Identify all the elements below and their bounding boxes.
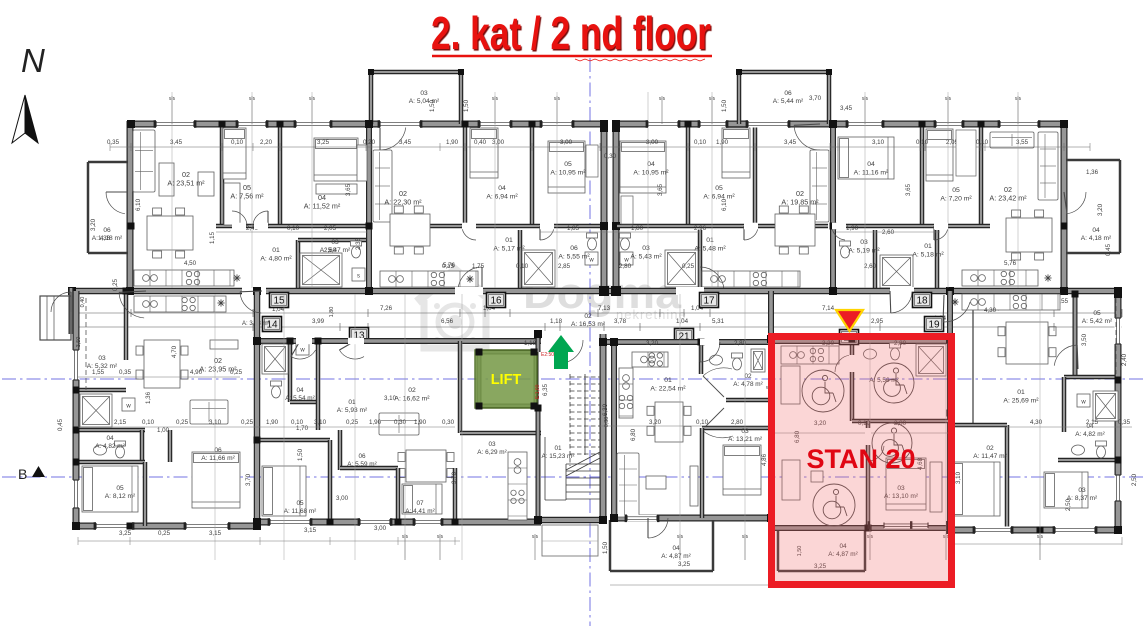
svg-text:03: 03 [642, 245, 650, 252]
svg-text:A: 5,18 m²: A: 5,18 m² [912, 251, 944, 258]
svg-text:A: 6,94 m²: A: 6,94 m² [703, 193, 735, 200]
svg-text:01: 01 [706, 237, 714, 244]
svg-text:3,25: 3,25 [317, 139, 330, 146]
svg-text:2,96: 2,96 [694, 225, 707, 232]
svg-text:A: 5,19 m²: A: 5,19 m² [848, 247, 880, 254]
svg-text:2,15: 2,15 [114, 419, 127, 426]
svg-text:A: 10,95 m²: A: 10,95 m² [633, 169, 669, 176]
svg-text:3,20: 3,20 [649, 419, 662, 426]
svg-text:5 5: 5 5 [249, 96, 256, 101]
svg-text:0,45: 0,45 [1105, 243, 1112, 256]
svg-text:A: 5,43 m²: A: 5,43 m² [630, 253, 662, 260]
svg-text:05: 05 [296, 500, 304, 507]
svg-text:3,50: 3,50 [1081, 333, 1088, 346]
svg-text:1,90: 1,90 [716, 139, 729, 146]
svg-text:A: 6,29 m²: A: 6,29 m² [477, 449, 506, 456]
svg-text:w: w [125, 404, 131, 410]
svg-text:5,31: 5,31 [712, 318, 725, 325]
svg-text:A: 11,66 m²: A: 11,66 m² [201, 455, 235, 462]
svg-text:02: 02 [182, 170, 190, 179]
svg-text:6,35: 6,35 [542, 383, 549, 396]
svg-text:0,25: 0,25 [112, 278, 119, 291]
svg-text:5 5: 5 5 [492, 96, 499, 101]
svg-text:0,10: 0,10 [287, 225, 300, 232]
svg-text:16: 16 [490, 296, 502, 307]
svg-text:3,65: 3,65 [657, 183, 664, 196]
svg-text:A: 7,20 m²: A: 7,20 m² [940, 195, 972, 202]
svg-text:w: w [1080, 400, 1086, 406]
svg-text:s: s [357, 274, 360, 280]
svg-text:0,10: 0,10 [916, 139, 929, 146]
svg-text:05: 05 [715, 185, 723, 192]
svg-text:3,45: 3,45 [840, 105, 853, 112]
svg-text:3,20: 3,20 [1097, 203, 1104, 216]
svg-text:1,18: 1,18 [550, 318, 563, 325]
svg-text:1,90: 1,90 [846, 225, 859, 232]
svg-text:5 5: 5 5 [677, 534, 684, 539]
svg-text:3,20: 3,20 [646, 340, 659, 347]
svg-text:5 5: 5 5 [709, 96, 716, 101]
svg-text:0,10: 0,10 [976, 139, 989, 146]
svg-text:4,70: 4,70 [171, 345, 178, 358]
svg-text:2,60: 2,60 [864, 263, 877, 270]
svg-text:5,76: 5,76 [1004, 260, 1017, 267]
svg-text:3,15: 3,15 [304, 527, 317, 534]
svg-text:5 5: 5 5 [554, 96, 561, 101]
svg-text:05: 05 [952, 187, 960, 194]
svg-text:04: 04 [1092, 227, 1100, 234]
svg-text:LIFT: LIFT [491, 372, 522, 388]
svg-text:5 5: 5 5 [402, 534, 409, 539]
svg-text:A: 4,41 m²: A: 4,41 m² [405, 508, 434, 515]
svg-text:A: 11,68 m²: A: 11,68 m² [284, 508, 317, 515]
svg-text:A: 6,94 m²: A: 6,94 m² [486, 193, 518, 200]
svg-text:3,65: 3,65 [345, 183, 352, 196]
svg-text:A: 5,48 m²: A: 5,48 m² [694, 245, 726, 252]
svg-text:04: 04 [672, 545, 680, 552]
svg-text:01: 01 [924, 243, 932, 250]
svg-text:3,10: 3,10 [872, 139, 885, 146]
svg-text:06: 06 [214, 447, 222, 454]
svg-text:1,50: 1,50 [429, 99, 436, 112]
svg-text:18: 18 [916, 296, 928, 307]
svg-text:15: 15 [273, 296, 285, 307]
svg-text:05: 05 [1093, 310, 1101, 317]
svg-text:6,10: 6,10 [721, 198, 728, 211]
svg-text:A: 23,51 m²: A: 23,51 m² [167, 179, 205, 188]
svg-text:3,00: 3,00 [492, 139, 505, 146]
svg-text:1,00: 1,00 [157, 427, 170, 434]
svg-text:E:1,60: E:1,60 [535, 384, 541, 399]
svg-text:02: 02 [986, 445, 994, 452]
svg-text:A: 16,62 m²: A: 16,62 m² [394, 395, 430, 402]
svg-text:2,60: 2,60 [882, 229, 895, 236]
svg-text:2,20: 2,20 [260, 139, 273, 146]
svg-text:1,50: 1,50 [463, 99, 470, 112]
svg-text:06: 06 [570, 245, 578, 252]
svg-text:04: 04 [106, 435, 114, 442]
svg-text:A: 7,56 m²: A: 7,56 m² [230, 192, 264, 201]
svg-text:3,50: 3,50 [76, 337, 82, 348]
svg-text:5 5: 5 5 [1037, 534, 1044, 539]
svg-text:0,40: 0,40 [474, 139, 487, 146]
svg-text:02: 02 [584, 313, 592, 320]
svg-text:5 5: 5 5 [659, 96, 666, 101]
svg-text:0,10: 0,10 [516, 263, 529, 270]
svg-text:02: 02 [1004, 185, 1012, 194]
svg-text:04: 04 [498, 185, 506, 192]
svg-text:02: 02 [796, 189, 804, 198]
svg-text:2,60: 2,60 [324, 247, 337, 254]
svg-text:06: 06 [358, 453, 366, 460]
svg-text:3,65: 3,65 [905, 183, 912, 196]
svg-text:6,10: 6,10 [135, 198, 142, 211]
svg-text:1,50: 1,50 [602, 541, 609, 554]
svg-text:0,10: 0,10 [142, 419, 155, 426]
svg-text:A: 4,80 m²: A: 4,80 m² [260, 255, 292, 262]
svg-text:3,10: 3,10 [955, 471, 962, 484]
svg-text:0,25: 0,25 [346, 419, 359, 426]
svg-text:3,10: 3,10 [314, 419, 327, 426]
svg-text:1,36: 1,36 [98, 235, 111, 242]
svg-text:2,05: 2,05 [324, 225, 337, 232]
svg-text:A: 4,78 m²: A: 4,78 m² [733, 381, 762, 388]
svg-text:0,25: 0,25 [230, 369, 243, 376]
svg-text:3,10: 3,10 [384, 395, 397, 402]
svg-text:STAN 20: STAN 20 [806, 444, 915, 474]
svg-text:03: 03 [1078, 487, 1086, 494]
svg-text:2,40: 2,40 [1121, 353, 1128, 366]
svg-text:1,90: 1,90 [446, 139, 459, 146]
svg-text:1,50: 1,50 [297, 448, 304, 461]
svg-text:01: 01 [664, 377, 672, 384]
svg-text:01: 01 [505, 237, 513, 244]
svg-text:0,15: 0,15 [442, 263, 455, 270]
svg-text:7,26: 7,26 [380, 305, 393, 312]
svg-text:A: 5,44 m²: A: 5,44 m² [773, 98, 804, 105]
svg-text:5 5: 5 5 [945, 96, 952, 101]
svg-text:0,30: 0,30 [604, 153, 617, 160]
svg-text:1,70: 1,70 [296, 425, 309, 432]
svg-text:A: 5,93 m²: A: 5,93 m² [337, 407, 368, 414]
svg-text:2,35: 2,35 [355, 237, 362, 250]
svg-text:05: 05 [243, 183, 251, 192]
svg-text:6,30: 6,30 [602, 403, 609, 416]
svg-text:2,85: 2,85 [558, 263, 571, 270]
svg-text:2,15: 2,15 [1086, 419, 1099, 426]
svg-text:A: 22,30 m²: A: 22,30 m² [384, 198, 422, 207]
svg-text:4,50: 4,50 [184, 260, 197, 267]
svg-text:1,04: 1,04 [676, 318, 689, 325]
svg-text:2. kat / 2 nd floor: 2. kat / 2 nd floor [431, 7, 711, 59]
svg-text:2,80: 2,80 [734, 340, 747, 347]
svg-text:A: 23,42 m²: A: 23,42 m² [989, 194, 1027, 203]
svg-text:06: 06 [103, 227, 111, 234]
svg-text:01: 01 [554, 445, 562, 452]
svg-text:1,85: 1,85 [567, 225, 580, 232]
svg-text:0,30: 0,30 [442, 419, 455, 426]
svg-text:3,45: 3,45 [784, 139, 797, 146]
svg-text:04: 04 [647, 161, 655, 168]
svg-text:02: 02 [744, 373, 752, 380]
svg-text:0,10: 0,10 [694, 139, 707, 146]
svg-text:01: 01 [1017, 389, 1025, 396]
svg-text:A: 4,87 m²: A: 4,87 m² [661, 553, 690, 560]
svg-text:3,25: 3,25 [678, 561, 691, 568]
svg-text:A: 5,17 m²: A: 5,17 m² [493, 245, 525, 252]
svg-text:0,30: 0,30 [394, 419, 407, 426]
svg-text:3,70: 3,70 [809, 95, 822, 102]
svg-text:03: 03 [98, 355, 106, 362]
svg-text:0,25: 0,25 [241, 419, 254, 426]
svg-text:01: 01 [272, 247, 280, 254]
svg-text:2,80: 2,80 [619, 263, 632, 270]
svg-text:A: 11,47 m²: A: 11,47 m² [973, 453, 1007, 460]
svg-text:1,50: 1,50 [721, 99, 728, 112]
svg-text:N: N [21, 42, 45, 79]
svg-text:5 5: 5 5 [309, 96, 316, 101]
svg-text:03: 03 [488, 441, 496, 448]
svg-text:A: 25,69 m²: A: 25,69 m² [1003, 397, 1039, 404]
svg-text:A: 4,82 m²: A: 4,82 m² [1075, 431, 1104, 438]
svg-text:A: 5,59 m²: A: 5,59 m² [347, 461, 376, 468]
svg-text:1,36: 1,36 [1086, 169, 1099, 176]
svg-text:B: B [18, 466, 27, 482]
svg-text:2,50: 2,50 [1065, 498, 1072, 511]
svg-text:3,00: 3,00 [374, 525, 387, 532]
svg-text:2,80: 2,80 [731, 419, 744, 426]
svg-text:19: 19 [928, 320, 940, 331]
svg-text:5 5: 5 5 [532, 534, 539, 539]
svg-text:A: 11,16 m²: A: 11,16 m² [854, 169, 889, 176]
svg-text:5 5: 5 5 [1015, 96, 1022, 101]
svg-text:A: 15,23 m²: A: 15,23 m² [541, 453, 574, 460]
svg-text:3,70: 3,70 [245, 473, 252, 486]
svg-text:04: 04 [318, 193, 326, 202]
svg-text:0,35: 0,35 [1118, 419, 1131, 426]
svg-text:3,45: 3,45 [399, 139, 412, 146]
svg-text:0,35: 0,35 [119, 369, 132, 376]
svg-text:A: 10,95 m²: A: 10,95 m² [550, 169, 586, 176]
svg-text:3,15: 3,15 [209, 530, 222, 537]
svg-text:5 5: 5 5 [169, 96, 176, 101]
svg-text:A: 4,18 m²: A: 4,18 m² [1081, 235, 1112, 242]
svg-text:1,80: 1,80 [329, 307, 335, 318]
svg-text:5 5: 5 5 [437, 534, 444, 539]
svg-text:A: 5,55 m²: A: 5,55 m² [558, 253, 590, 260]
svg-text:3,99: 3,99 [312, 318, 325, 325]
svg-text:A: 5,42 m²: A: 5,42 m² [1082, 318, 1113, 325]
svg-text:03: 03 [860, 239, 868, 246]
svg-text:7,13: 7,13 [598, 305, 611, 312]
svg-text:3,00: 3,00 [336, 495, 349, 502]
svg-text:A: 22,54 m²: A: 22,54 m² [650, 385, 686, 392]
svg-text:A: 8,12 m²: A: 8,12 m² [105, 493, 136, 500]
svg-text:1,36: 1,36 [145, 391, 152, 404]
svg-text:7,14: 7,14 [822, 305, 835, 312]
svg-text:3,78: 3,78 [614, 318, 627, 325]
svg-text:6,56: 6,56 [441, 318, 454, 325]
svg-text:4,30: 4,30 [984, 307, 997, 314]
svg-text:05: 05 [564, 161, 572, 168]
svg-text:0,40: 0,40 [80, 297, 86, 308]
svg-text:1,80: 1,80 [631, 225, 644, 232]
svg-text:3,20: 3,20 [90, 218, 97, 231]
svg-text:4,90: 4,90 [190, 369, 203, 376]
svg-text:0,10: 0,10 [231, 139, 244, 146]
svg-text:0,25: 0,25 [176, 419, 189, 426]
svg-text:03: 03 [420, 90, 428, 97]
svg-text:1,55: 1,55 [92, 369, 105, 376]
svg-text:06: 06 [784, 90, 792, 97]
svg-text:5 5: 5 5 [862, 96, 869, 101]
svg-text:03: 03 [331, 239, 339, 246]
svg-text:A: 13,21 m²: A: 13,21 m² [728, 436, 763, 443]
svg-text:17: 17 [703, 296, 715, 307]
svg-text:A: 5,54 m²: A: 5,54 m² [285, 395, 314, 402]
svg-text:3,00: 3,00 [560, 139, 573, 146]
svg-text:07: 07 [416, 500, 424, 507]
svg-text:02: 02 [399, 189, 407, 198]
svg-text:1,90: 1,90 [369, 419, 382, 426]
svg-text:04: 04 [296, 387, 304, 394]
svg-text:0,10: 0,10 [696, 419, 709, 426]
svg-text:A: 4,82 m²: A: 4,82 m² [95, 443, 124, 450]
svg-text:1,90: 1,90 [414, 419, 427, 426]
svg-text:4,30: 4,30 [1030, 419, 1043, 426]
svg-text:0,25: 0,25 [158, 530, 171, 537]
svg-text:1,15: 1,15 [209, 231, 216, 244]
svg-text:0,45: 0,45 [57, 418, 64, 431]
svg-text:2,50: 2,50 [1131, 473, 1138, 486]
svg-text:3,70: 3,70 [451, 471, 458, 484]
svg-text:2,95: 2,95 [871, 318, 884, 325]
svg-text:1,90: 1,90 [266, 419, 279, 426]
svg-text:1,75: 1,75 [472, 263, 485, 270]
svg-text:02: 02 [408, 387, 416, 394]
svg-text:3,10: 3,10 [209, 419, 222, 426]
svg-text:4,86: 4,86 [761, 453, 768, 466]
svg-text:1,18: 1,18 [524, 340, 537, 347]
svg-text:0,25: 0,25 [682, 263, 695, 270]
svg-text:A: 11,52 m²: A: 11,52 m² [304, 202, 341, 211]
svg-text:0,35: 0,35 [107, 139, 120, 146]
svg-text:5 5: 5 5 [742, 534, 749, 539]
svg-text:A: 19,85 m²: A: 19,85 m² [781, 198, 819, 207]
svg-text:0,20: 0,20 [363, 139, 376, 146]
svg-text:05: 05 [116, 485, 124, 492]
svg-text:6,80: 6,80 [630, 428, 637, 441]
svg-text:04: 04 [867, 161, 875, 168]
svg-text:3,25: 3,25 [119, 530, 132, 537]
svg-text:w: w [299, 348, 305, 354]
